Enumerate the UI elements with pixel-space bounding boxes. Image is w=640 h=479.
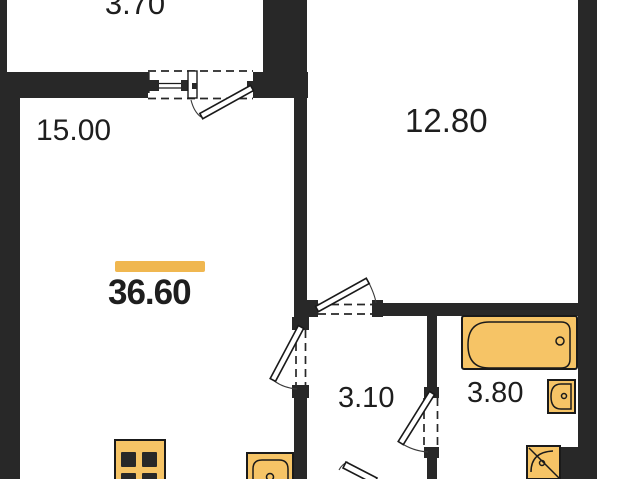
- stove-burner: [121, 473, 136, 479]
- wash-basin: [548, 380, 575, 413]
- window-glass-lines: [159, 84, 181, 89]
- door-leaf: [316, 278, 370, 311]
- stove-burner: [142, 473, 157, 479]
- total-area-accent-bar: [115, 261, 205, 272]
- total-area-label: 36.60: [108, 274, 191, 313]
- stove: [115, 440, 165, 479]
- right-wall: [578, 0, 597, 479]
- hallway-area-label: 3.10: [338, 383, 394, 415]
- bathroom-door: [398, 391, 437, 452]
- bathroom-wall-lower: [427, 458, 437, 479]
- bathroom-wall-upper: [427, 316, 437, 388]
- balcony-left-wall: [0, 0, 7, 76]
- door-leaf: [343, 462, 377, 479]
- door-leaf: [200, 85, 254, 118]
- balcony-bottom-wall: [0, 72, 148, 98]
- floor-plan-drawing: [0, 0, 640, 479]
- living-room-area-label: 15.00: [36, 114, 111, 147]
- bath-door-hinge-bottom: [424, 447, 439, 458]
- bathroom-area-label: 3.80: [467, 378, 523, 410]
- stove-burner: [121, 452, 136, 467]
- living-door-hinge-bottom: [292, 385, 309, 398]
- hall-bath-top-wall: [373, 303, 597, 316]
- partition-column: [263, 0, 307, 98]
- left-wall: [0, 72, 20, 479]
- duct-stub: [560, 447, 578, 479]
- bedroom-door: [316, 278, 376, 314]
- kitchen-sink: [247, 453, 293, 479]
- door-latch: [192, 83, 197, 89]
- door-leaf: [270, 326, 303, 382]
- bedroom-area-label: 12.80: [405, 103, 488, 139]
- living-room-door: [270, 326, 305, 389]
- floor-plan: 3.70 15.00 12.80 3.10 3.80 36.60: [0, 0, 640, 479]
- middle-wall-lower: [294, 397, 307, 479]
- stove-burner: [142, 452, 157, 467]
- bathtub: [462, 316, 577, 369]
- middle-wall-upper: [294, 98, 307, 330]
- window-post: [148, 80, 159, 91]
- door-leaf: [398, 391, 434, 444]
- balcony-door: [188, 71, 253, 119]
- corner-basin: [527, 446, 560, 479]
- entrance-door: [339, 462, 377, 479]
- balcony-area-label: 3.70: [84, 0, 186, 21]
